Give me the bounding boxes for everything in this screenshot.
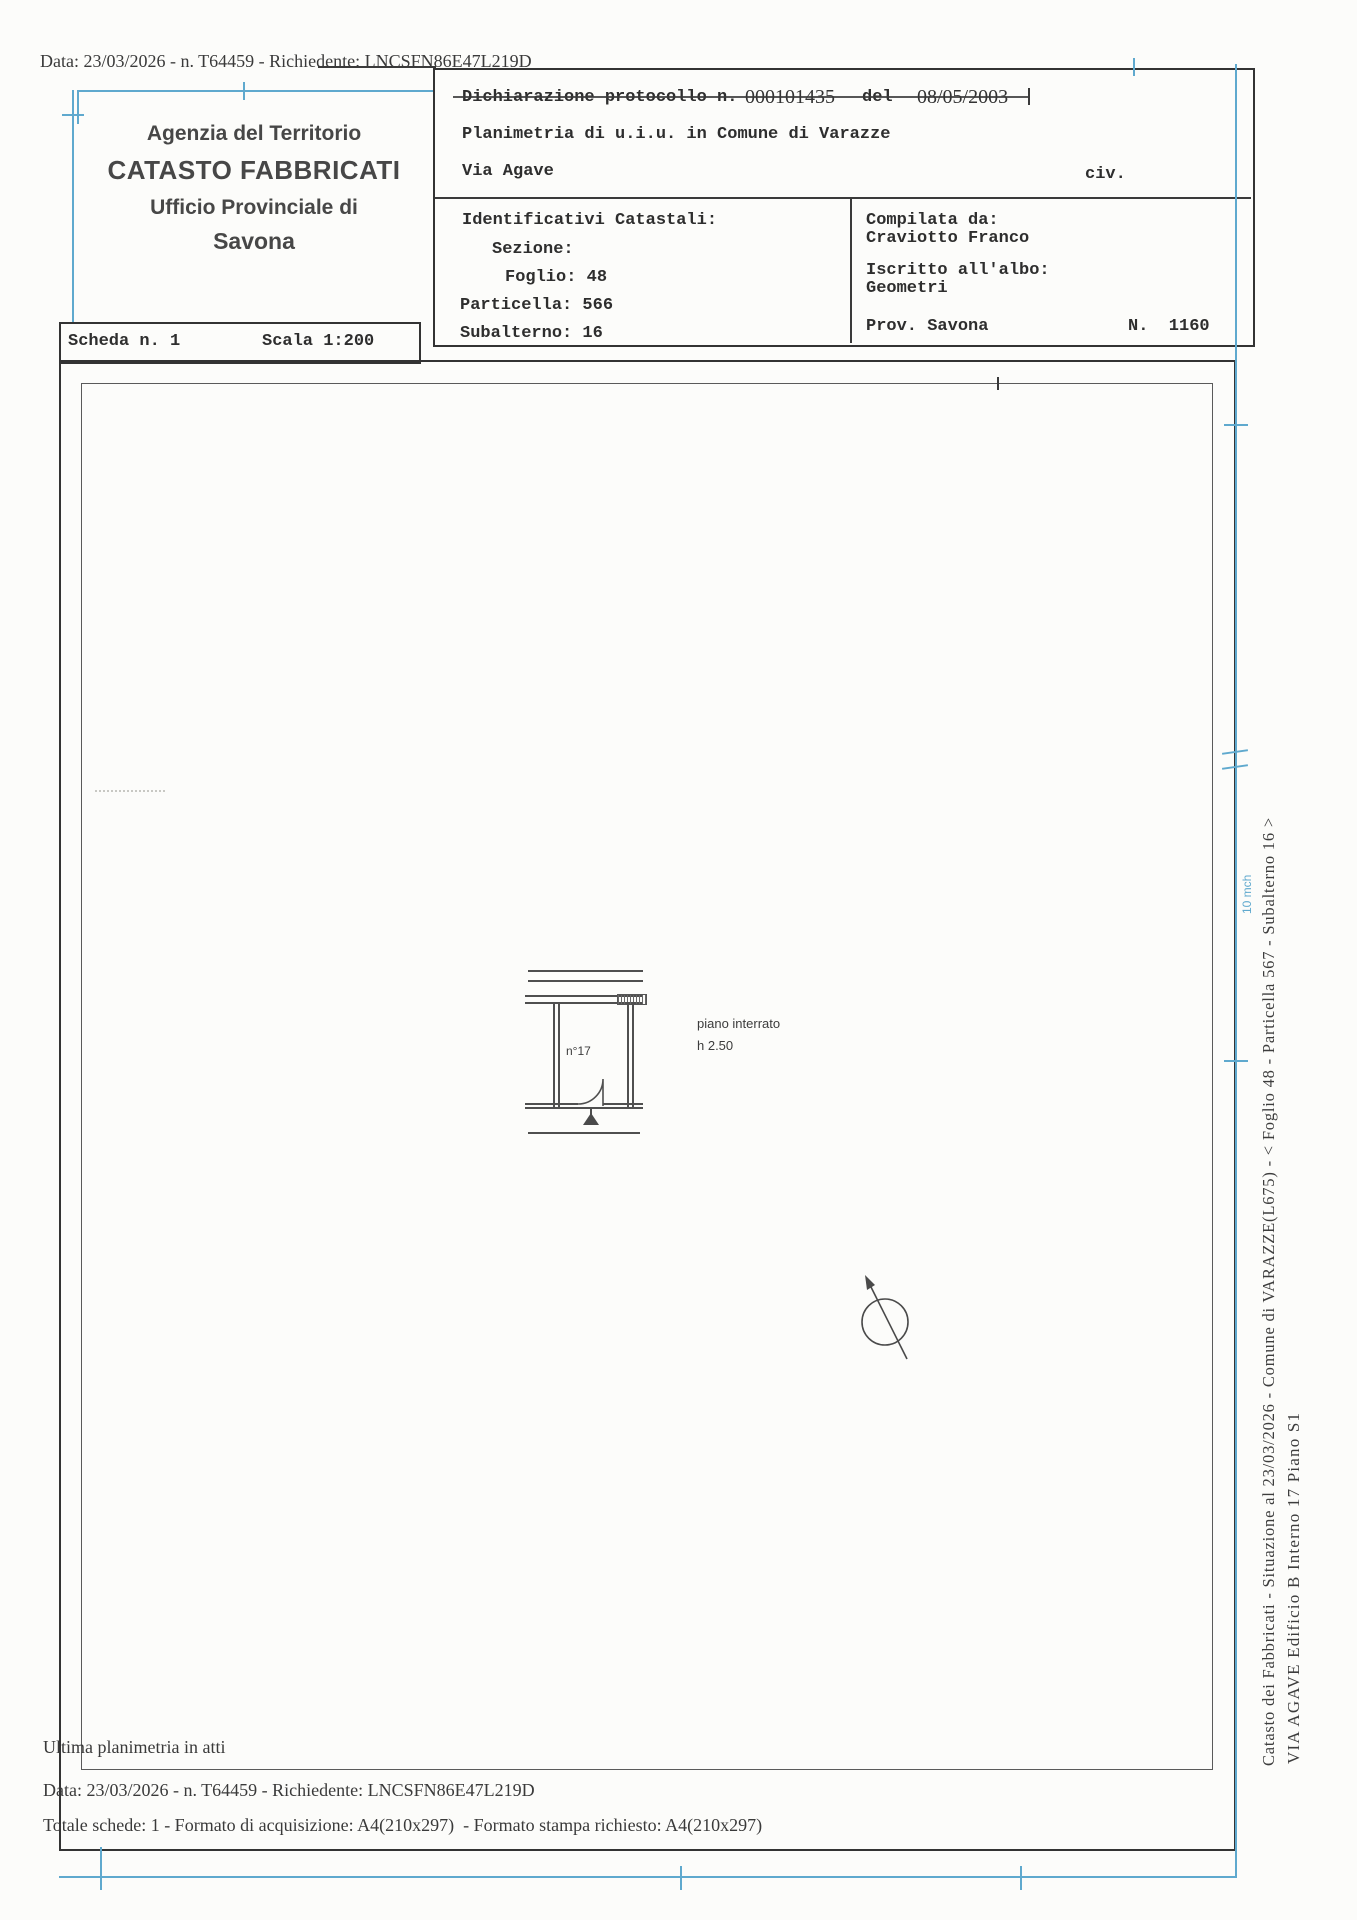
scan-bottom-data-line: Data: 23/03/2026 - n. T64459 - Richieden… — [43, 1781, 535, 1799]
plan-door-swing — [575, 1076, 609, 1110]
scala-value: Scala 1:200 — [262, 333, 374, 350]
box-top-extension — [318, 66, 436, 68]
room-number-label: n°17 — [566, 1044, 591, 1058]
registration-tick — [1020, 1866, 1022, 1890]
iscritto-label: Iscritto all'albo: — [866, 262, 1050, 279]
albo-number: N. 1160 — [1128, 318, 1210, 335]
plan-wall-left — [553, 1002, 555, 1107]
plan-wall-bottom — [603, 1103, 643, 1105]
registration-line — [77, 90, 433, 92]
registration-line — [72, 90, 74, 323]
registration-strike-line — [453, 96, 1028, 98]
registration-line-right — [1235, 64, 1237, 1878]
registration-line-bottom — [59, 1876, 1237, 1878]
agency-header: Agenzia del Territorio CATASTO FABBRICAT… — [95, 122, 413, 255]
compilata-label: Compilata da: — [866, 212, 999, 229]
registration-tick — [1224, 1060, 1248, 1062]
plan-entry-arrow-icon — [583, 1113, 599, 1125]
box-divider-vertical — [850, 199, 852, 343]
frame-tick — [997, 377, 999, 390]
margin-cadastre-reference: Catasto dei Fabbricati - Situazione al 2… — [1259, 810, 1279, 1766]
scan-bottom-format-line: Totale schede: 1 - Formato di acquisizio… — [43, 1816, 762, 1834]
office-line: Ufficio Provinciale di — [95, 196, 413, 220]
plan-wall-right — [627, 1002, 629, 1107]
particella-field: Particella: 566 — [460, 297, 613, 314]
civ-label: civ. — [1085, 166, 1126, 183]
registration-tick — [243, 82, 245, 100]
plan-boundary-line — [528, 1132, 640, 1134]
catasto-title: CATASTO FABBRICATI — [95, 155, 413, 186]
margin-blue-note: 10 mch — [1240, 852, 1254, 914]
province-name: Savona — [95, 228, 413, 255]
agency-name: Agenzia del Territorio — [95, 122, 413, 146]
drawing-inner-frame — [81, 383, 1213, 1770]
plan-wall-left — [558, 1002, 560, 1107]
registration-tick — [1028, 88, 1030, 105]
ultima-planimetria-note: Ultima planimetria in atti — [43, 1738, 225, 1756]
plan-wall-right — [632, 1002, 634, 1107]
scheda-number: Scheda n. 1 — [68, 333, 180, 350]
registration-tick — [62, 114, 84, 116]
registration-tick — [680, 1866, 682, 1890]
box-divider-horizontal — [435, 197, 1251, 199]
plan-wall-bottom — [525, 1103, 578, 1105]
scan-smudge — [95, 790, 165, 792]
subalterno-field: Subalterno: 16 — [460, 325, 603, 342]
registration-tick — [100, 1847, 102, 1890]
registration-tick — [1133, 58, 1135, 76]
street-name: Via Agave — [462, 163, 554, 180]
prov-field: Prov. Savona — [866, 318, 988, 335]
albo-name: Geometri — [866, 280, 948, 297]
planimetria-line: Planimetria di u.i.u. in Comune di Varaz… — [462, 126, 890, 143]
cadastral-document-page: Data: 23/03/2026 - n. T64459 - Richieden… — [0, 0, 1357, 1920]
plan-boundary-line — [528, 980, 643, 982]
sezione-field: Sezione: — [492, 241, 574, 258]
ceiling-height-label: h 2.50 — [697, 1038, 733, 1053]
foglio-field: Foglio: 48 — [505, 269, 607, 286]
registration-line — [77, 90, 79, 124]
plan-boundary-line — [528, 970, 643, 972]
registration-tick — [1224, 424, 1248, 426]
north-arrow-icon — [845, 1262, 935, 1372]
margin-address-reference: VIA AGAVE Edificio B Interno 17 Piano S1 — [1284, 1392, 1304, 1764]
compiler-name: Craviotto Franco — [866, 230, 1029, 247]
floor-label: piano interrato — [697, 1016, 780, 1031]
identifiers-title: Identificativi Catastali: — [462, 212, 717, 229]
